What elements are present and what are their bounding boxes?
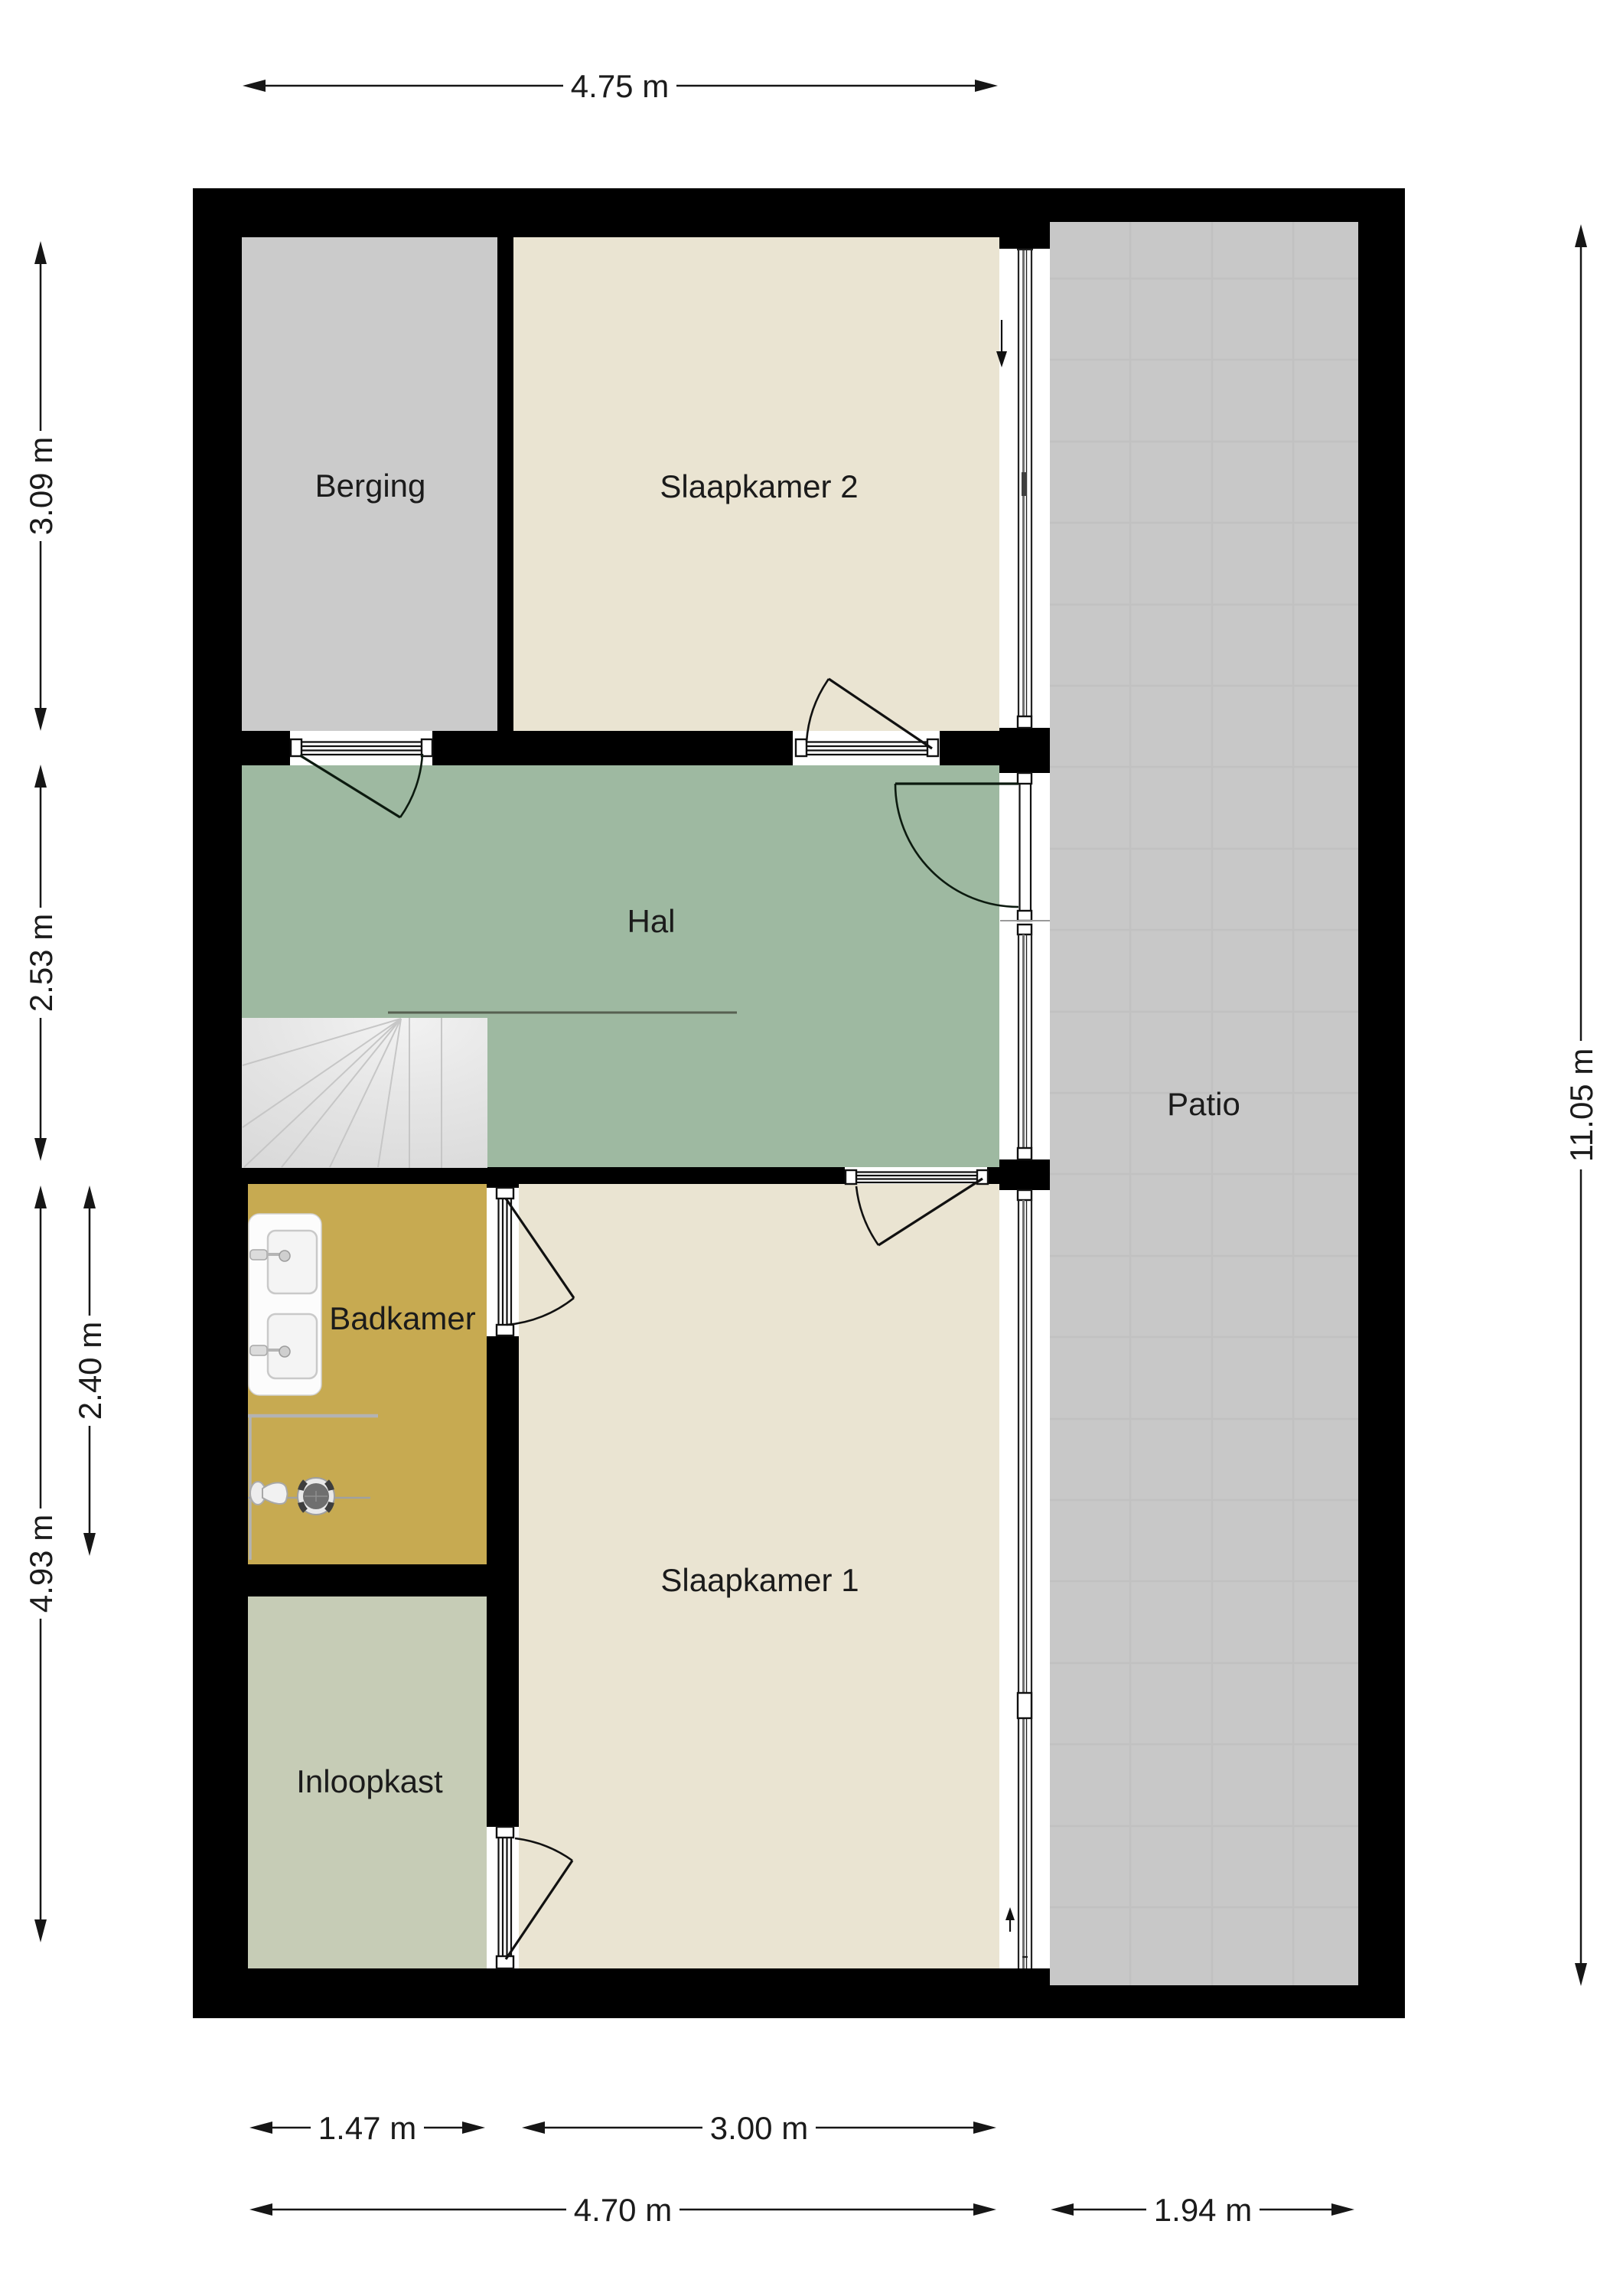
svg-text:Slaapkamer 1: Slaapkamer 1 bbox=[660, 1562, 859, 1598]
svg-text:Badkamer: Badkamer bbox=[329, 1300, 475, 1336]
svg-text:Berging: Berging bbox=[315, 468, 426, 504]
svg-text:1.47 m: 1.47 m bbox=[318, 2110, 416, 2146]
svg-text:1.94 m: 1.94 m bbox=[1154, 2192, 1252, 2228]
svg-text:Patio: Patio bbox=[1167, 1086, 1240, 1122]
svg-text:4.70 m: 4.70 m bbox=[574, 2192, 672, 2228]
svg-text:3.00 m: 3.00 m bbox=[710, 2110, 808, 2146]
svg-text:3.09 m: 3.09 m bbox=[23, 437, 59, 535]
svg-text:Hal: Hal bbox=[627, 903, 675, 939]
svg-text:4.93 m: 4.93 m bbox=[23, 1515, 59, 1613]
svg-text:Slaapkamer 2: Slaapkamer 2 bbox=[660, 468, 858, 504]
svg-text:Inloopkast: Inloopkast bbox=[296, 1763, 443, 1799]
svg-text:2.53 m: 2.53 m bbox=[23, 914, 59, 1012]
svg-text:11.05 m: 11.05 m bbox=[1563, 1049, 1599, 1163]
svg-text:4.75 m: 4.75 m bbox=[571, 68, 669, 104]
svg-text:2.40 m: 2.40 m bbox=[72, 1322, 108, 1420]
